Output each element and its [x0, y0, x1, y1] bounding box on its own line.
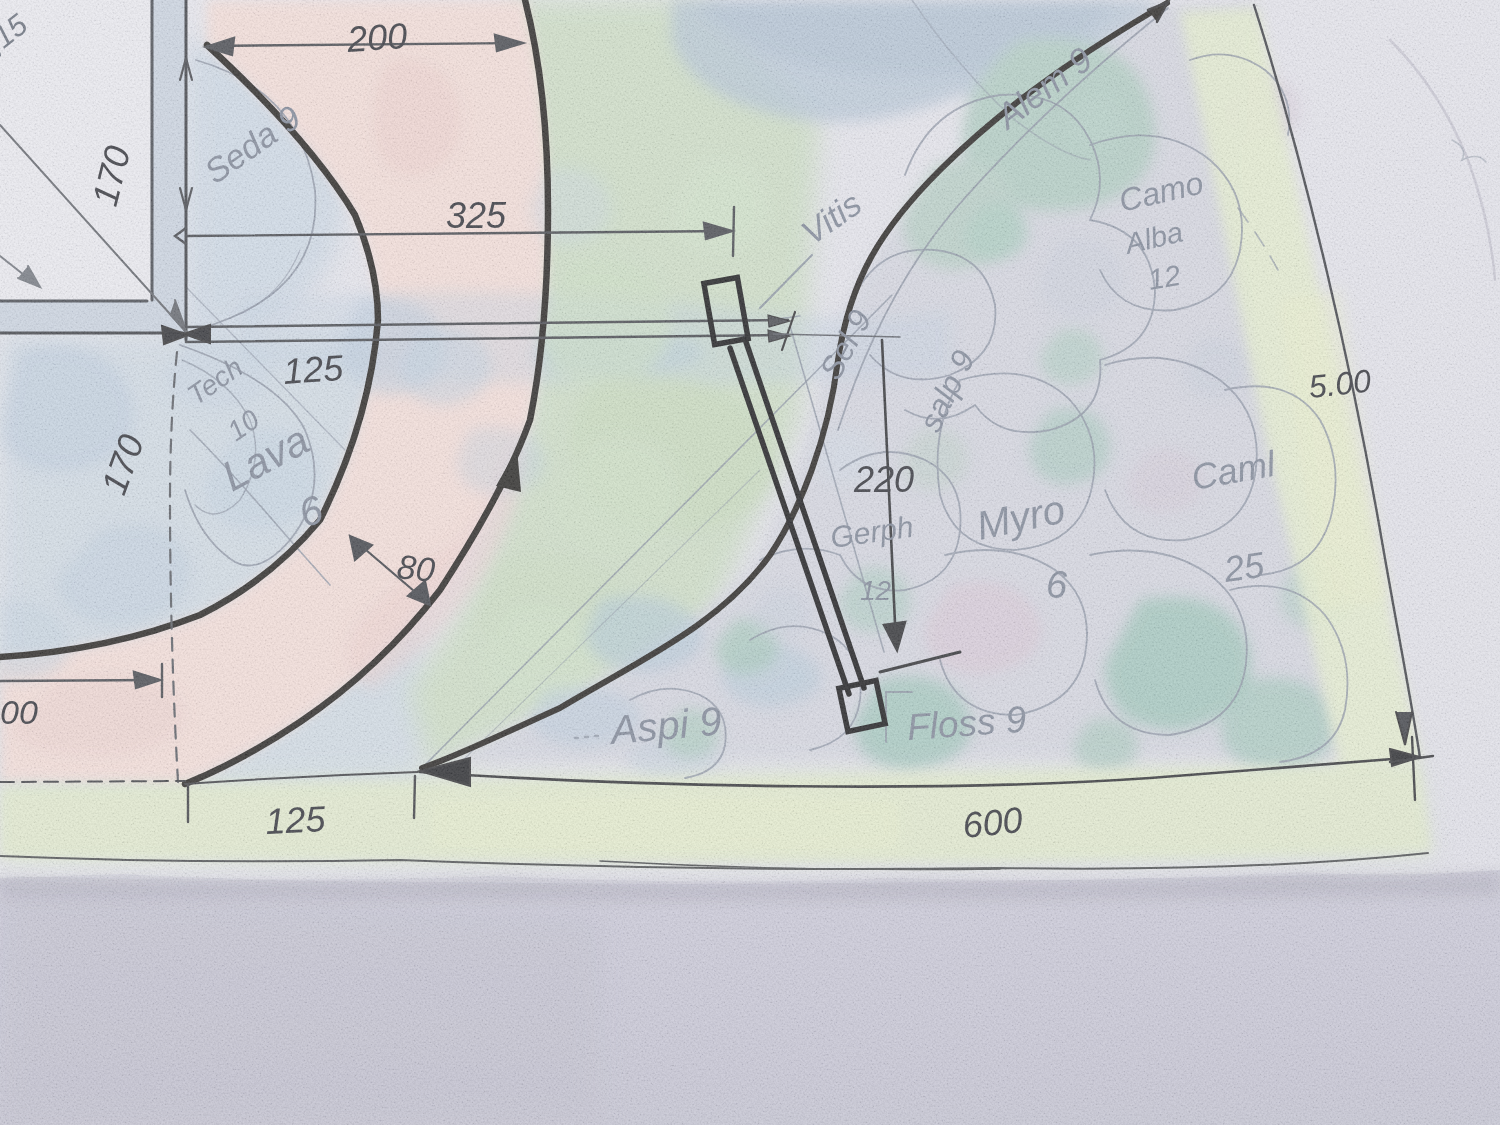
svg-text:200: 200 — [345, 15, 409, 60]
svg-text:6: 6 — [1046, 564, 1068, 606]
svg-text:12: 12 — [860, 575, 892, 606]
svg-text:220: 220 — [853, 459, 914, 500]
svg-text:325: 325 — [446, 195, 507, 236]
svg-text:12: 12 — [1145, 259, 1182, 296]
svg-text:600: 600 — [961, 799, 1025, 846]
svg-text:5.00: 5.00 — [1307, 363, 1373, 405]
svg-text:00: 00 — [0, 693, 38, 731]
svg-text:125: 125 — [264, 798, 327, 842]
svg-text:Floss 9: Floss 9 — [906, 699, 1028, 748]
svg-text:25: 25 — [1220, 544, 1267, 590]
svg-text:125: 125 — [282, 347, 346, 392]
svg-text:80: 80 — [395, 547, 437, 589]
